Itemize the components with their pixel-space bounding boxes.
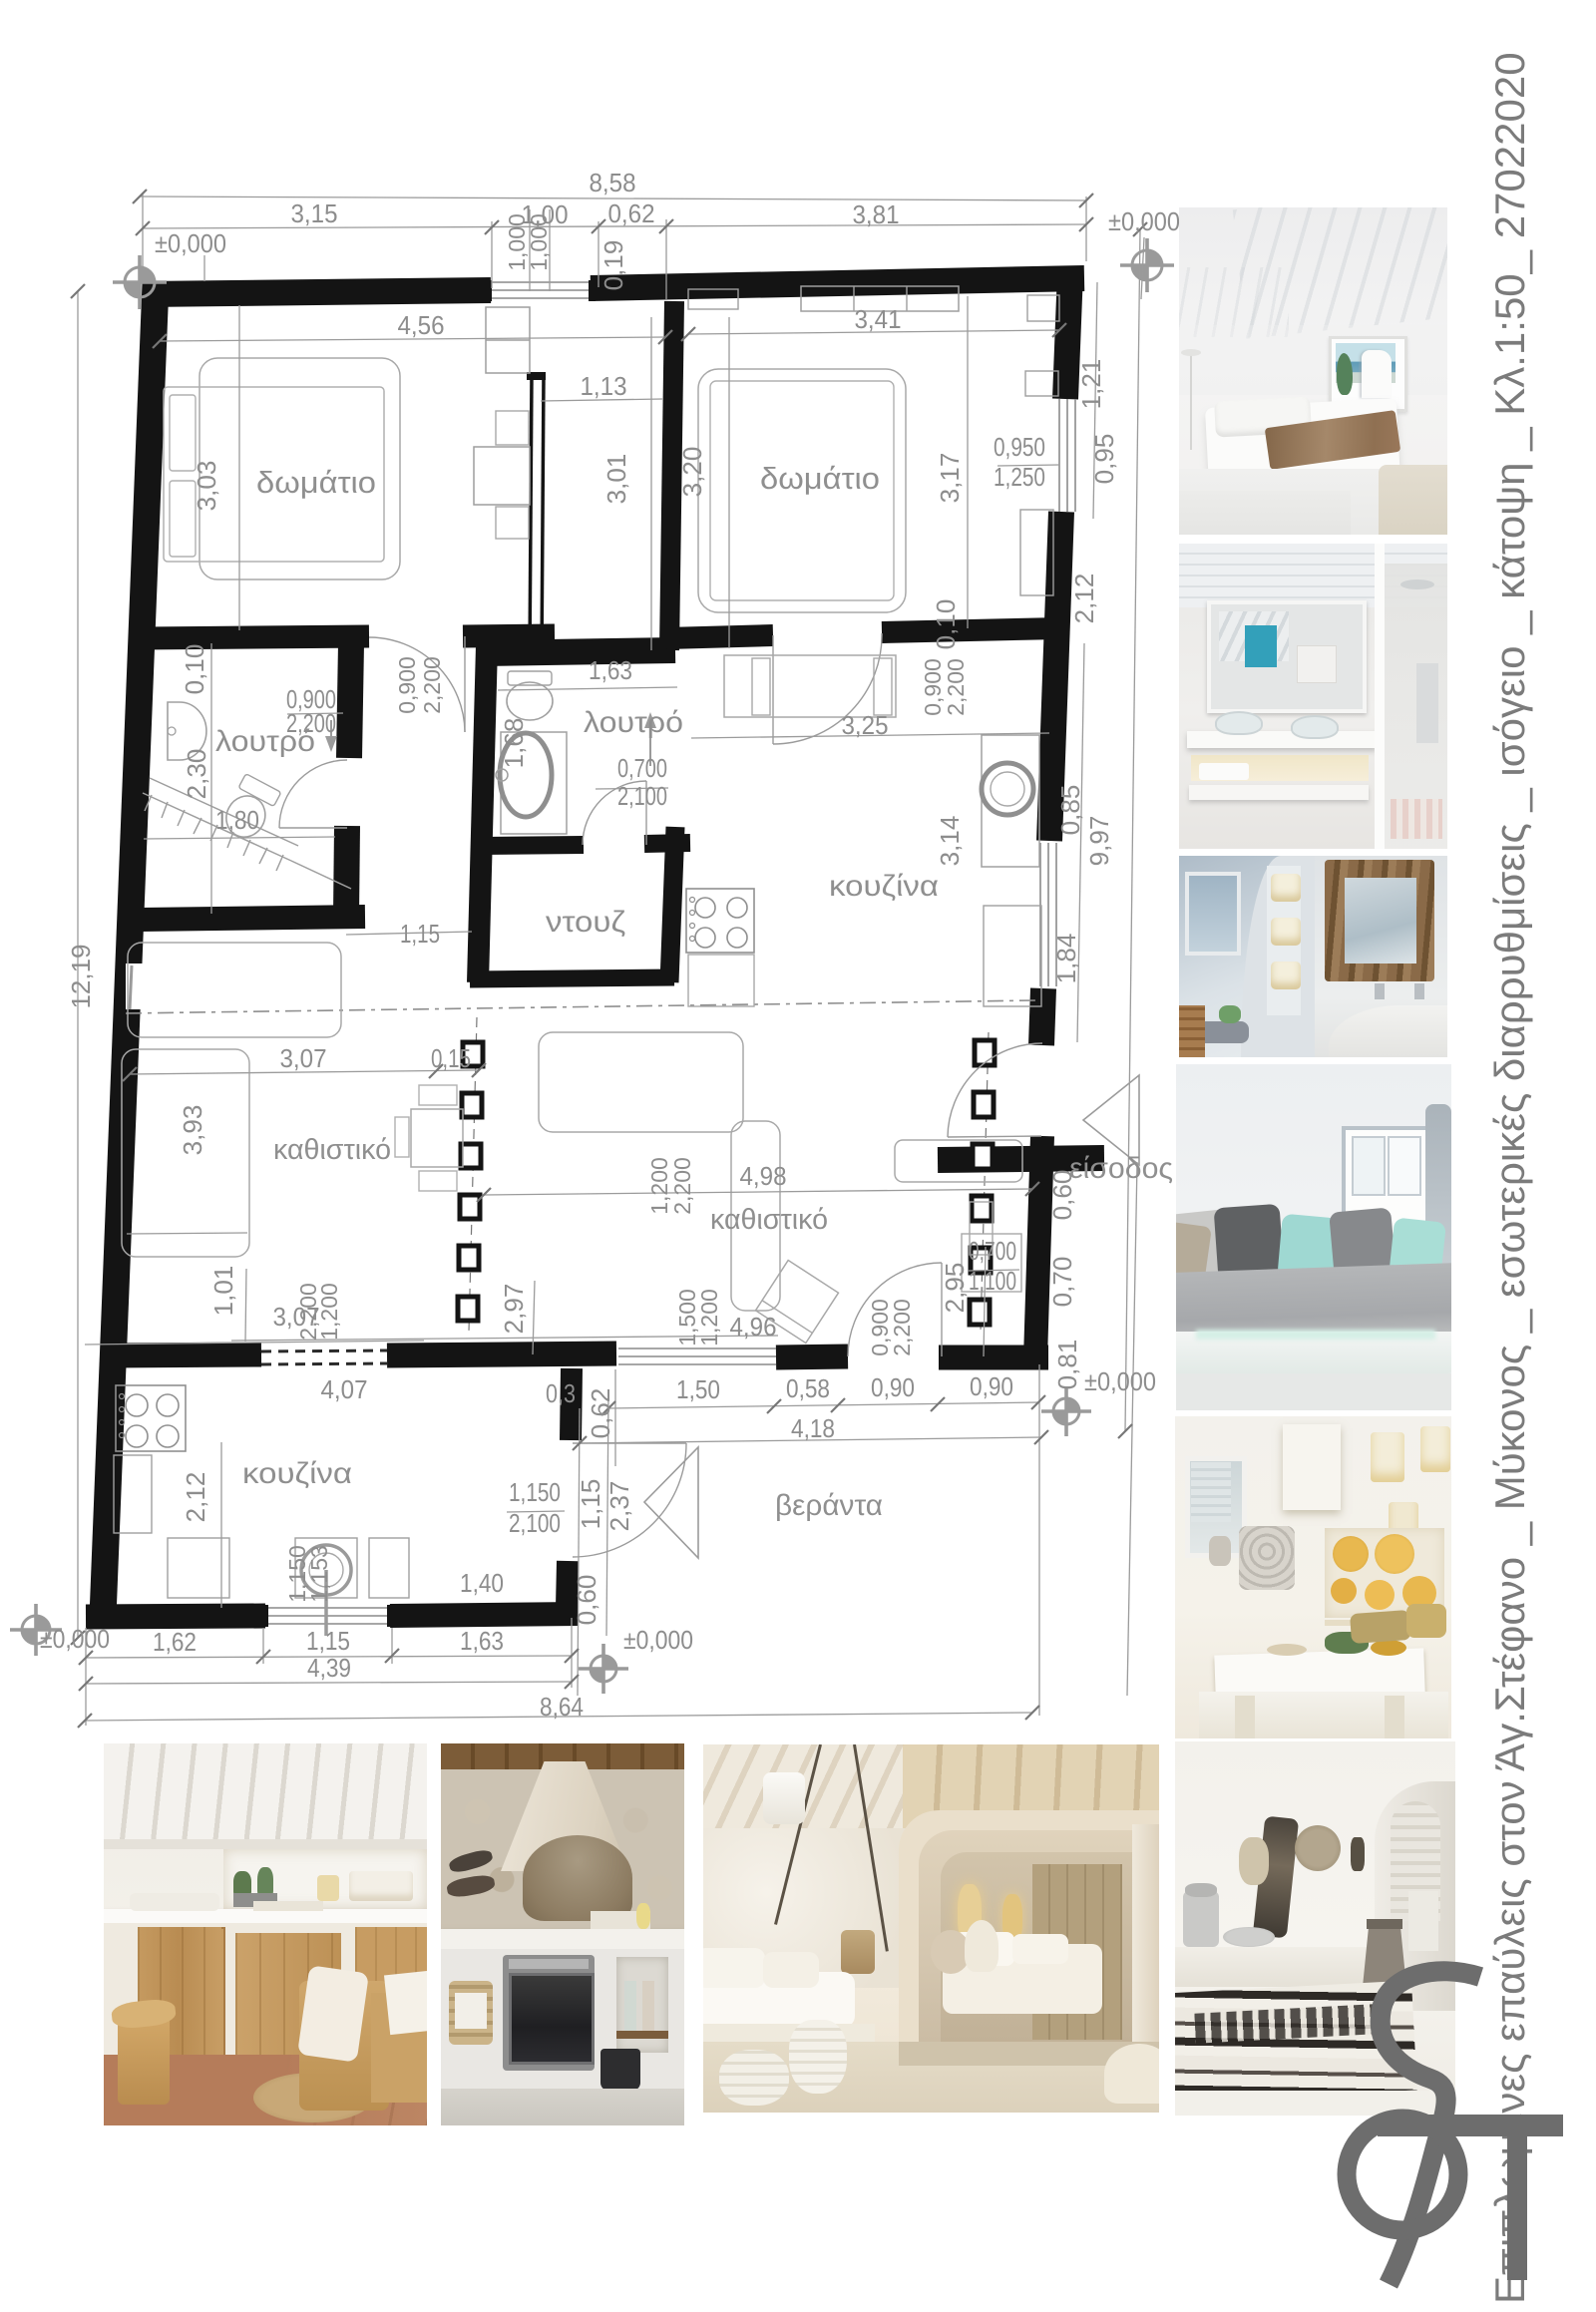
svg-text:1,000: 1,000 — [526, 213, 552, 271]
svg-text:±0,000: ±0,000 — [1108, 206, 1180, 236]
svg-text:±0,000: ±0,000 — [623, 1625, 693, 1655]
svg-text:0,81: 0,81 — [1052, 1340, 1082, 1390]
svg-text:0,62: 0,62 — [608, 198, 655, 228]
svg-text:3,14: 3,14 — [935, 816, 965, 867]
svg-text:1,80: 1,80 — [215, 805, 259, 835]
svg-text:κουζίνα: κουζίνα — [242, 1457, 352, 1490]
svg-text:1,21: 1,21 — [1076, 359, 1106, 410]
svg-text:1,150: 1,150 — [509, 1477, 561, 1507]
svg-text:0,950: 0,950 — [994, 432, 1045, 462]
svg-text:δωμάτιο: δωμάτιο — [256, 465, 376, 500]
svg-text:δωμάτιο: δωμάτιο — [760, 461, 880, 496]
svg-text:1,68: 1,68 — [499, 718, 529, 769]
svg-text:2,95: 2,95 — [940, 1263, 970, 1314]
svg-text:4,39: 4,39 — [307, 1653, 351, 1683]
svg-text:0,62: 0,62 — [586, 1388, 615, 1439]
svg-text:2,97: 2,97 — [499, 1284, 529, 1335]
svg-text:καθιστικό: καθιστικό — [273, 1134, 391, 1166]
svg-text:±0,000: ±0,000 — [155, 228, 226, 258]
svg-text:2,100: 2,100 — [509, 1508, 561, 1538]
svg-text:3,41: 3,41 — [855, 304, 902, 334]
svg-text:1,62: 1,62 — [153, 1627, 197, 1657]
svg-text:κουζίνα: κουζίνα — [829, 870, 939, 903]
svg-text:1,40: 1,40 — [460, 1568, 504, 1598]
svg-text:2,200: 2,200 — [669, 1157, 695, 1215]
svg-text:1,50: 1,50 — [676, 1374, 720, 1404]
svg-text:λουτρό: λουτρό — [215, 725, 315, 758]
svg-text:0,10: 0,10 — [931, 599, 961, 650]
svg-text:1,153: 1,153 — [306, 1545, 332, 1603]
svg-text:2,12: 2,12 — [181, 1472, 210, 1523]
svg-text:1,15: 1,15 — [306, 1626, 350, 1656]
svg-text:1,200: 1,200 — [696, 1289, 722, 1347]
svg-text:0,58: 0,58 — [786, 1373, 830, 1403]
svg-text:3,07: 3,07 — [280, 1043, 327, 1073]
svg-text:0,700: 0,700 — [617, 753, 667, 783]
svg-text:1,200: 1,200 — [316, 1283, 342, 1341]
svg-text:3,93: 3,93 — [178, 1105, 207, 1156]
svg-text:±0,000: ±0,000 — [40, 1624, 110, 1654]
svg-text:1,100: 1,100 — [969, 1266, 1016, 1296]
svg-text:2,12: 2,12 — [1069, 574, 1099, 624]
svg-text:3,25: 3,25 — [842, 710, 889, 740]
svg-text:9,97: 9,97 — [1084, 816, 1114, 867]
svg-text:4,98: 4,98 — [740, 1161, 787, 1191]
svg-text:4,96: 4,96 — [730, 1312, 777, 1342]
svg-text:0,700: 0,700 — [969, 1236, 1016, 1266]
svg-text:0,3: 0,3 — [546, 1378, 576, 1408]
svg-text:3,15: 3,15 — [291, 198, 338, 228]
svg-text:0,90: 0,90 — [871, 1372, 915, 1402]
svg-text:1,84: 1,84 — [1051, 934, 1081, 984]
svg-text:2,30: 2,30 — [182, 749, 211, 800]
svg-text:1,13: 1,13 — [581, 371, 627, 401]
svg-text:1,15: 1,15 — [576, 1479, 605, 1530]
svg-text:2,200: 2,200 — [943, 658, 969, 716]
svg-text:λουτρό: λουτρό — [584, 706, 683, 739]
svg-text:4,56: 4,56 — [398, 310, 445, 340]
svg-text:±0,000: ±0,000 — [1084, 1366, 1156, 1396]
svg-text:4,18: 4,18 — [791, 1413, 835, 1443]
svg-text:0,19: 0,19 — [598, 240, 628, 291]
svg-text:0,60: 0,60 — [572, 1575, 601, 1626]
svg-text:3,17: 3,17 — [935, 453, 965, 504]
svg-text:0,10: 0,10 — [180, 644, 209, 695]
svg-text:2,100: 2,100 — [617, 781, 667, 811]
svg-text:12,19: 12,19 — [66, 944, 96, 1008]
svg-text:1,63: 1,63 — [460, 1626, 504, 1656]
svg-text:4,07: 4,07 — [321, 1374, 368, 1404]
svg-text:0,85: 0,85 — [1055, 785, 1085, 836]
svg-text:1,250: 1,250 — [994, 462, 1045, 492]
svg-text:1,01: 1,01 — [208, 1266, 238, 1317]
svg-text:2,37: 2,37 — [604, 1481, 634, 1532]
svg-text:0,90: 0,90 — [970, 1371, 1013, 1401]
svg-text:ντουζ: ντουζ — [546, 906, 625, 939]
svg-text:καθιστικό: καθιστικό — [710, 1204, 828, 1236]
svg-text:βεράντα: βεράντα — [775, 1489, 883, 1522]
svg-text:3,81: 3,81 — [853, 199, 900, 229]
svg-text:3,03: 3,03 — [192, 461, 221, 512]
svg-text:είσοδος: είσοδος — [1069, 1152, 1173, 1185]
svg-text:0,15: 0,15 — [431, 1043, 471, 1073]
svg-text:8,58: 8,58 — [590, 168, 636, 197]
svg-text:3,20: 3,20 — [677, 447, 707, 498]
svg-text:2,200: 2,200 — [889, 1299, 915, 1356]
svg-text:2,200: 2,200 — [419, 656, 445, 714]
svg-text:1,15: 1,15 — [400, 919, 440, 949]
svg-text:0,95: 0,95 — [1089, 434, 1119, 485]
svg-text:8,64: 8,64 — [540, 1692, 584, 1722]
svg-text:3,01: 3,01 — [601, 454, 631, 505]
svg-text:1,63: 1,63 — [589, 655, 632, 685]
svg-text:0,70: 0,70 — [1047, 1257, 1077, 1308]
svg-text:0,900: 0,900 — [394, 656, 420, 714]
